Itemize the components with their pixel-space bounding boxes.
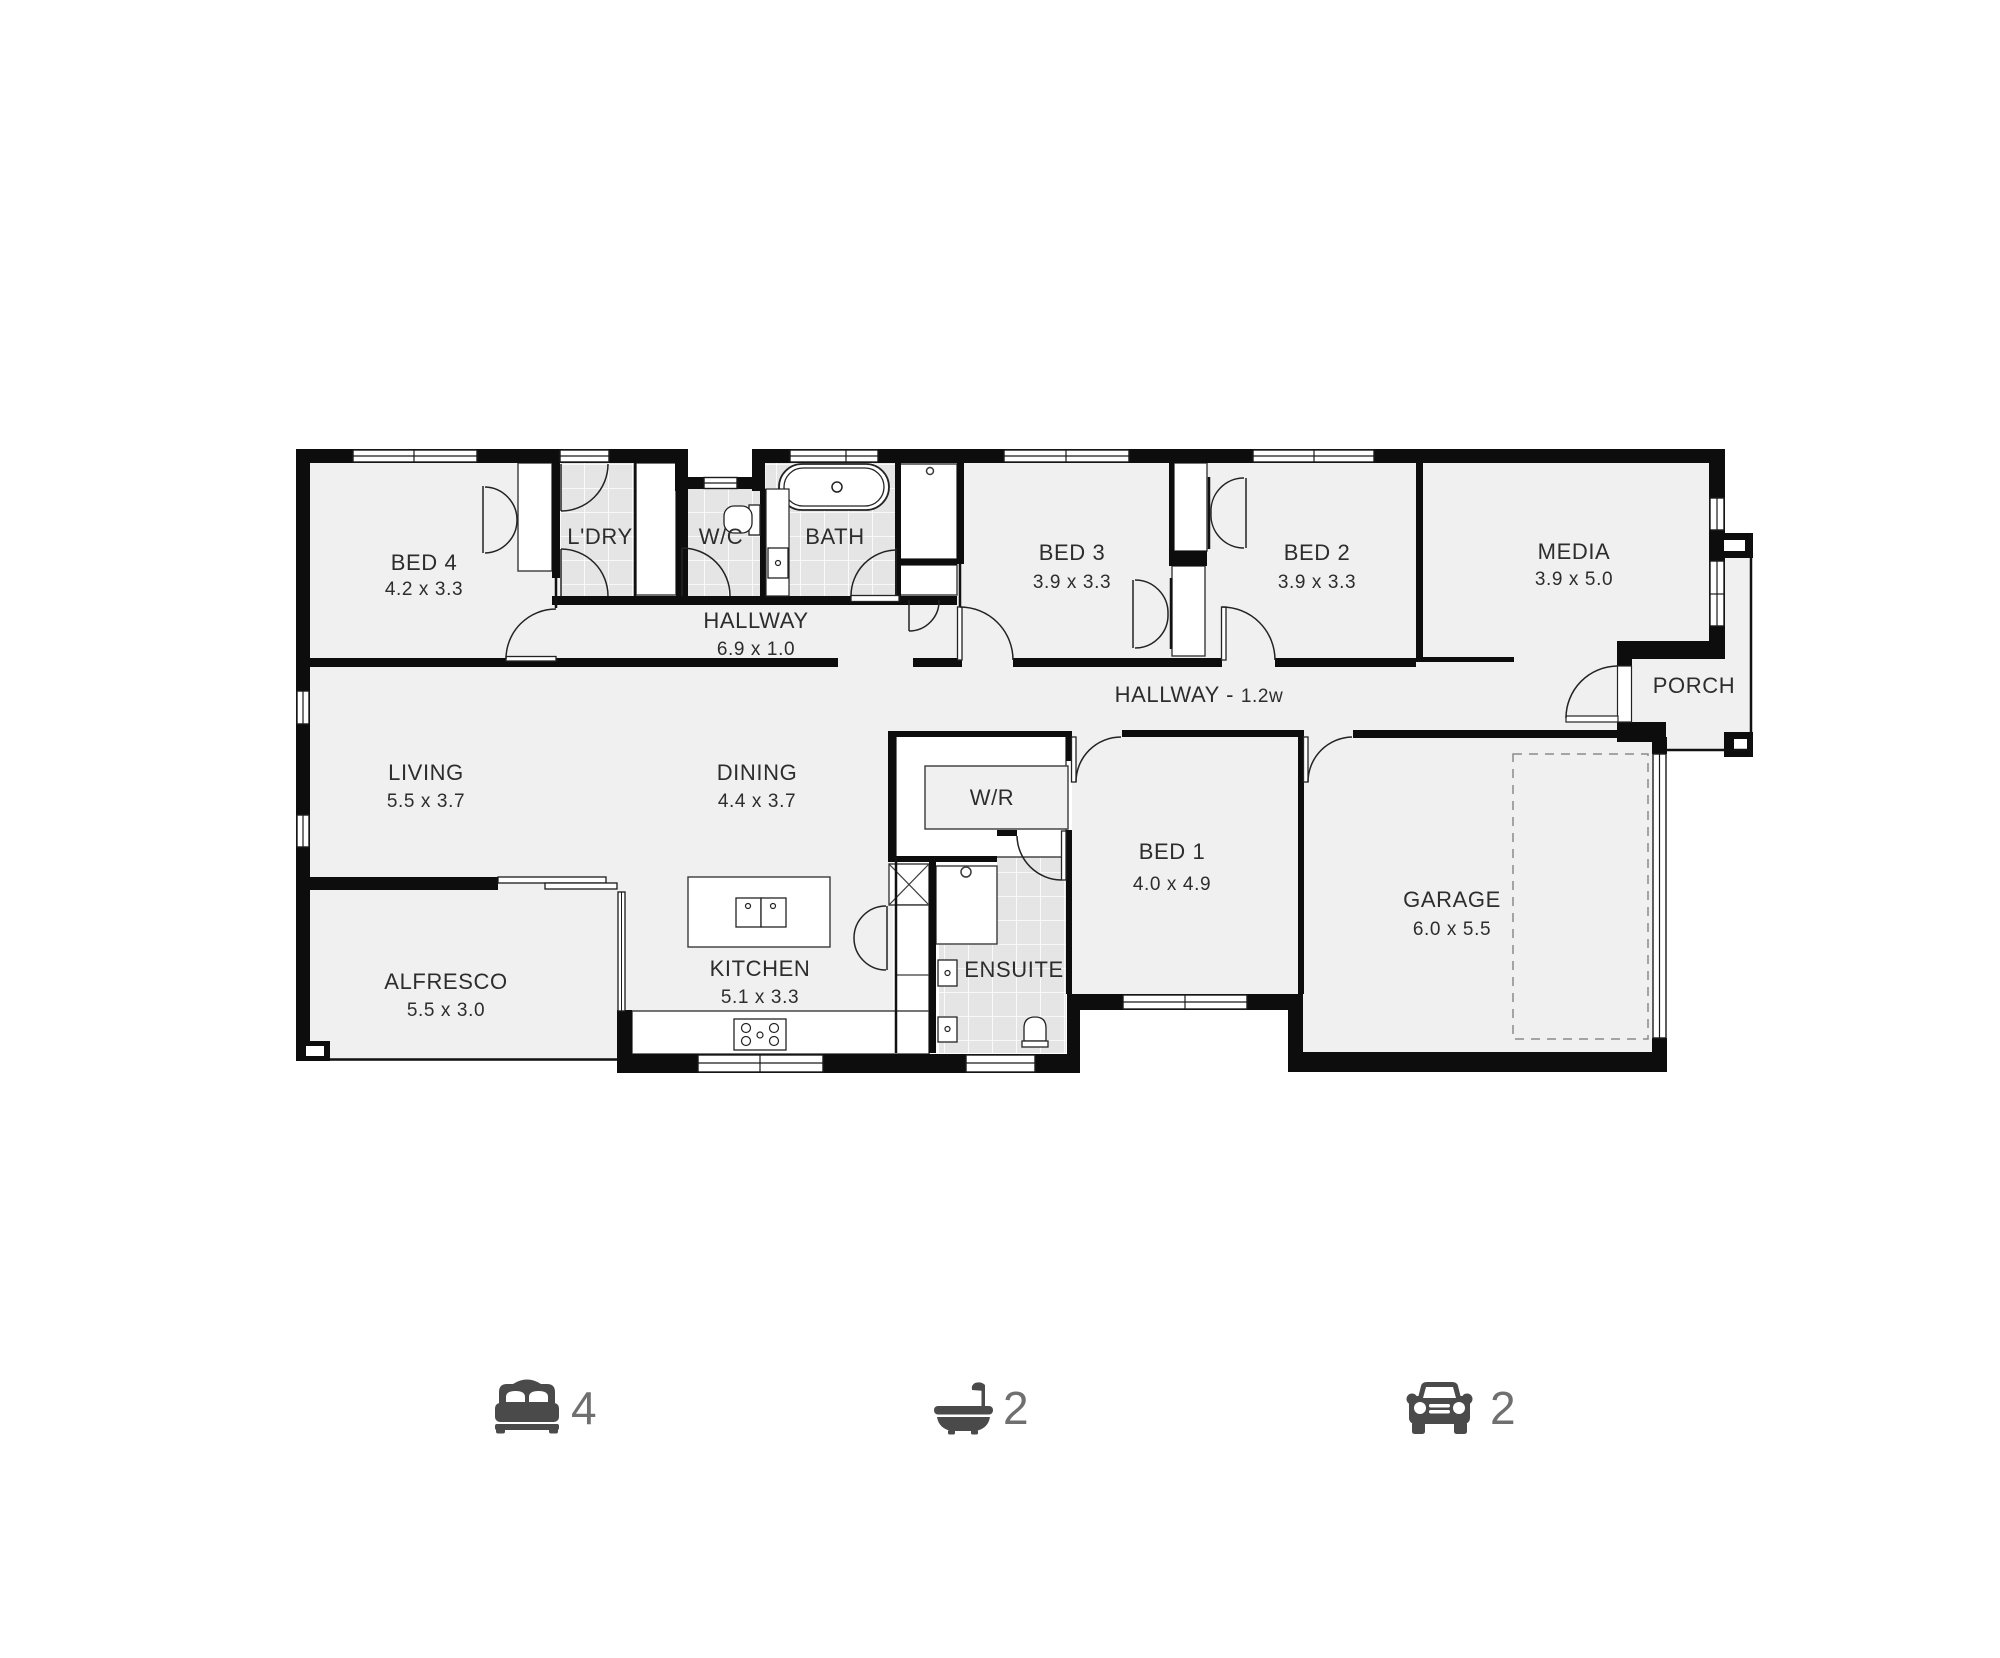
svg-text:BED 3: BED 3 <box>1039 540 1106 565</box>
svg-text:3.9 x 3.3: 3.9 x 3.3 <box>1033 572 1111 593</box>
svg-text:5.1 x 3.3: 5.1 x 3.3 <box>721 987 799 1008</box>
svg-text:HALLWAY - 1.2w: HALLWAY - 1.2w <box>1115 682 1284 707</box>
svg-text:BATH: BATH <box>805 524 864 549</box>
svg-text:2: 2 <box>1490 1382 1516 1434</box>
svg-text:6.0 x 5.5: 6.0 x 5.5 <box>1413 919 1491 940</box>
svg-text:PORCH: PORCH <box>1653 673 1735 698</box>
svg-text:GARAGE: GARAGE <box>1403 887 1501 912</box>
svg-text:6.9 x 1.0: 6.9 x 1.0 <box>717 639 795 660</box>
svg-text:KITCHEN: KITCHEN <box>710 956 811 981</box>
svg-text:BED 1: BED 1 <box>1139 839 1206 864</box>
svg-text:HALLWAY: HALLWAY <box>703 608 808 633</box>
svg-text:LIVING: LIVING <box>388 760 464 785</box>
svg-text:5.5 x 3.7: 5.5 x 3.7 <box>387 791 465 812</box>
svg-text:ENSUITE: ENSUITE <box>964 957 1064 982</box>
svg-text:L'DRY: L'DRY <box>567 524 633 549</box>
svg-text:3.9 x 3.3: 3.9 x 3.3 <box>1278 572 1356 593</box>
svg-text:4.4 x 3.7: 4.4 x 3.7 <box>718 791 796 812</box>
svg-text:4: 4 <box>571 1382 597 1434</box>
svg-text:W/C: W/C <box>699 524 744 549</box>
svg-text:DINING: DINING <box>717 760 798 785</box>
svg-text:4.2 x 3.3: 4.2 x 3.3 <box>385 579 463 600</box>
svg-text:3.9 x 5.0: 3.9 x 5.0 <box>1535 569 1613 590</box>
svg-text:4.0 x 4.9: 4.0 x 4.9 <box>1133 874 1211 895</box>
svg-text:2: 2 <box>1003 1382 1029 1434</box>
svg-text:W/R: W/R <box>970 785 1015 810</box>
svg-text:BED 4: BED 4 <box>391 550 458 575</box>
svg-text:5.5 x 3.0: 5.5 x 3.0 <box>407 1000 485 1021</box>
svg-text:BED 2: BED 2 <box>1284 540 1351 565</box>
svg-text:MEDIA: MEDIA <box>1538 539 1611 564</box>
svg-text:ALFRESCO: ALFRESCO <box>384 969 507 994</box>
